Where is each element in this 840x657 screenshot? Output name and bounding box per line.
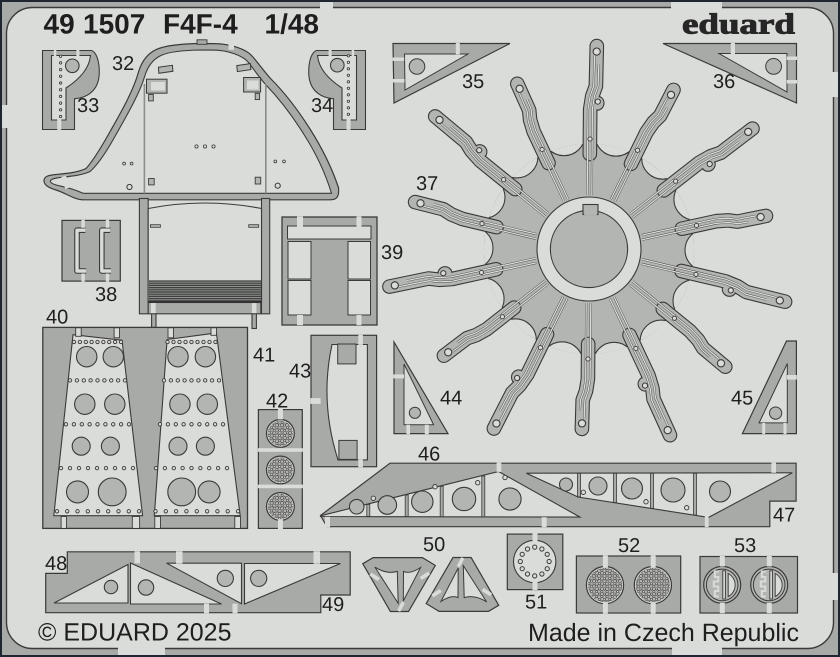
- svg-text:47: 47: [773, 505, 795, 527]
- svg-text:33: 33: [77, 95, 99, 117]
- svg-text:32: 32: [112, 53, 134, 75]
- svg-text:36: 36: [713, 71, 735, 93]
- svg-text:39: 39: [381, 242, 403, 264]
- svg-text:© EDUARD 2025: © EDUARD 2025: [38, 619, 232, 647]
- svg-text:eduard: eduard: [682, 9, 795, 41]
- svg-text:34: 34: [311, 95, 333, 117]
- svg-text:45: 45: [731, 388, 753, 410]
- svg-text:41: 41: [253, 345, 275, 367]
- svg-text:44: 44: [440, 388, 462, 410]
- svg-text:38: 38: [95, 284, 117, 306]
- svg-text:F4F-4: F4F-4: [163, 9, 238, 40]
- svg-text:35: 35: [462, 71, 484, 93]
- svg-text:40: 40: [46, 307, 68, 329]
- svg-text:49: 49: [44, 9, 75, 40]
- svg-text:1/48: 1/48: [265, 9, 320, 40]
- svg-text:49: 49: [322, 594, 344, 616]
- svg-text:53: 53: [734, 535, 756, 557]
- svg-text:43: 43: [289, 361, 311, 383]
- svg-text:37: 37: [416, 173, 438, 195]
- svg-text:48: 48: [45, 553, 67, 575]
- svg-text:52: 52: [618, 535, 640, 557]
- svg-text:Made in Czech Republic: Made in Czech Republic: [528, 619, 799, 647]
- svg-text:42: 42: [266, 391, 288, 413]
- svg-text:46: 46: [418, 444, 440, 466]
- svg-text:51: 51: [525, 592, 547, 614]
- svg-text:50: 50: [423, 534, 445, 556]
- svg-text:1507: 1507: [83, 9, 145, 40]
